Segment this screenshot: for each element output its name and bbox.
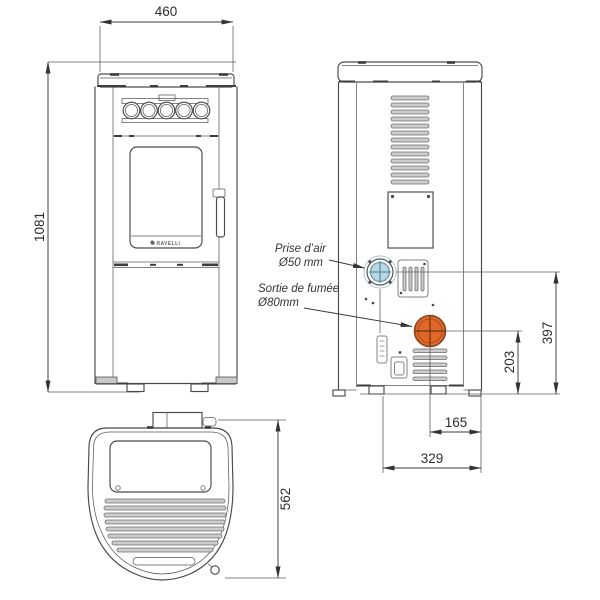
rear-foot-left [369, 386, 384, 394]
smoke-outlet-leader-arrow [304, 308, 412, 327]
dim-top-depth: 562 [218, 420, 293, 578]
front-foot-left [127, 384, 144, 392]
front-foot-right [191, 384, 208, 392]
smoke-outlet-label-line2: Ø80mm [257, 297, 299, 309]
front-base [95, 377, 237, 392]
brand-logo-text: RAVELLI [157, 241, 181, 247]
front-view: 460 1081 [32, 4, 237, 392]
front-door: RAVELLI [113, 147, 225, 268]
air-intake-leader-arrow [329, 260, 365, 268]
top-rear-duct [153, 413, 216, 429]
rear-foot-outer-left [333, 390, 345, 396]
rear-foot-outer-right [469, 390, 481, 396]
rear-access-panel [388, 192, 433, 248]
dim-329-label: 329 [421, 451, 444, 466]
smoke-outlet-label-line1: Sortie de fumée [258, 283, 339, 295]
rear-foot-right [431, 386, 446, 394]
dim-397-label: 397 [540, 322, 555, 345]
grille-ring [123, 102, 210, 119]
rear-top-panel [338, 62, 482, 82]
rear-view: 397 203 165 329 Prise d’air Ø50 mm Sorti… [257, 62, 560, 473]
dim-562-label: 562 [278, 488, 293, 511]
rear-annotations: Prise d’air Ø50 mm Sortie de fumée Ø80mm [257, 243, 412, 327]
air-intake-label-line2: Ø50 mm [278, 257, 324, 269]
smoke-outlet-port [415, 316, 446, 347]
top-door-knob [208, 564, 219, 574]
front-body-shell [95, 87, 237, 384]
dim-smoke-outlet-offset: 165 [430, 415, 481, 432]
dim-air-intake-height: 397 [540, 272, 556, 394]
dim-rear-base-width: 329 [383, 451, 481, 468]
dim-front-height-label: 1081 [32, 212, 47, 242]
dim-smoke-outlet-height: 203 [502, 331, 518, 394]
rating-plate [377, 336, 387, 363]
front-top-panel [97, 74, 236, 87]
rear-vent-grille [391, 96, 429, 184]
dim-front-width-label: 460 [155, 4, 178, 19]
dim-203-label: 203 [502, 351, 517, 374]
top-lid-panel [110, 441, 211, 492]
diagram-canvas: 460 1081 [0, 0, 600, 600]
front-air-grille [113, 95, 219, 136]
door-handle [213, 189, 225, 237]
rear-base [333, 386, 481, 396]
power-socket [391, 351, 407, 378]
brand-leaf-icon [150, 240, 154, 245]
top-view: 562 [88, 413, 293, 581]
door-glass [130, 147, 202, 248]
rear-dimensions: 397 203 165 329 [360, 272, 560, 473]
stove-dimension-diagram: 460 1081 [0, 0, 600, 600]
rear-slot-bracket [398, 260, 428, 297]
air-intake-label-line1: Prise d’air [275, 243, 327, 255]
dim-165-label: 165 [445, 415, 468, 430]
